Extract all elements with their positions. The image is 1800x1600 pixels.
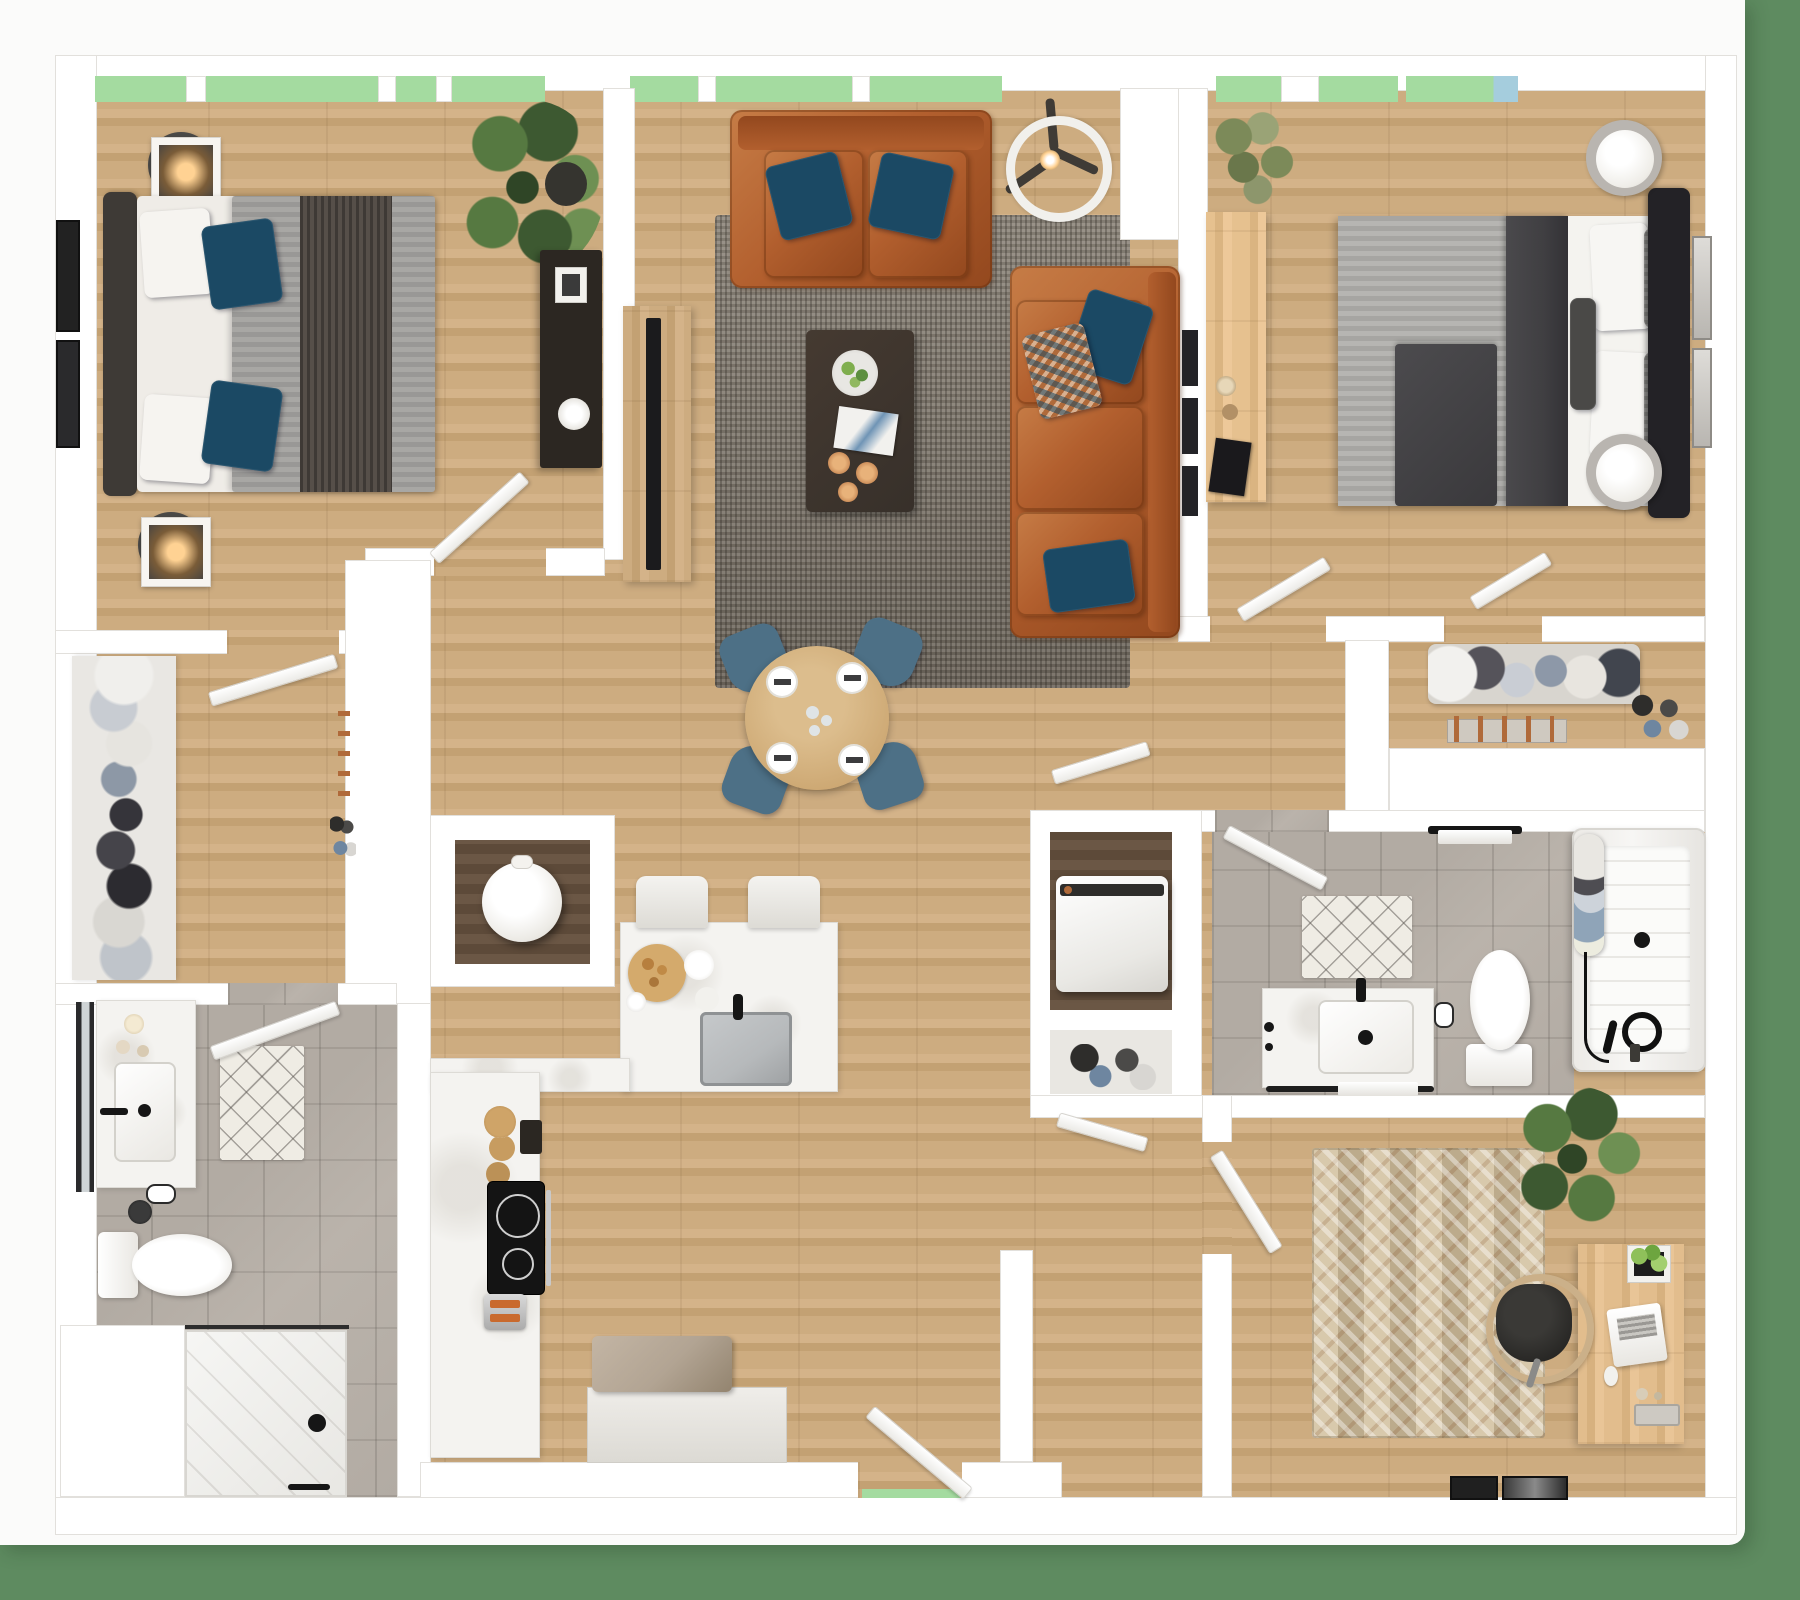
closet-shoes xyxy=(330,806,356,866)
wall-shelf-frame xyxy=(1182,398,1198,454)
closet-shelf-strip xyxy=(72,656,176,980)
vanity-candle xyxy=(124,1014,144,1034)
vase-neck xyxy=(512,856,532,868)
pastries xyxy=(642,958,654,970)
office-large-plant xyxy=(1506,1086,1644,1226)
bath-mat xyxy=(220,1046,304,1160)
closet-shoes xyxy=(1626,688,1692,746)
towel xyxy=(1438,830,1512,844)
tub-faucet-set xyxy=(1622,1012,1662,1052)
shower-pan xyxy=(185,1330,347,1497)
decor-candle xyxy=(856,462,878,484)
ceiling-fan-ring xyxy=(1006,116,1112,222)
ceiling-fan-light xyxy=(1040,150,1060,170)
bed2-charcoal-throw xyxy=(1395,344,1497,506)
loveseat-back xyxy=(738,116,984,150)
sink-drain xyxy=(1358,1030,1373,1045)
hanging-clothes xyxy=(1428,644,1640,704)
glassware xyxy=(806,706,819,719)
toilet-tank xyxy=(1466,1044,1532,1086)
bed2-charcoal-runner xyxy=(1506,216,1568,506)
black-faucet xyxy=(1356,978,1366,1002)
shower-glass xyxy=(185,1325,349,1329)
decor-vase xyxy=(482,862,562,942)
oven-handle xyxy=(546,1190,551,1286)
vanity-soaps xyxy=(116,1040,130,1054)
tub-bottle xyxy=(1630,1044,1640,1062)
entry-bench-cushion xyxy=(592,1336,732,1392)
wall-art-frame xyxy=(58,222,78,330)
entry-threshold-green xyxy=(862,1489,960,1498)
desk-candles xyxy=(1216,376,1236,396)
bathroom1-linen-closet xyxy=(60,1325,185,1497)
bedside-lamp xyxy=(142,518,210,586)
cooktop-burner xyxy=(496,1194,540,1238)
bar-stool xyxy=(636,876,708,928)
hanger-rail-hooks xyxy=(338,700,350,796)
console-decor-plate xyxy=(558,398,590,430)
desk-tray xyxy=(1634,1404,1680,1426)
wall-shelf-frame xyxy=(1182,466,1198,516)
tub-drain xyxy=(1634,932,1650,948)
food-plate xyxy=(684,950,714,980)
wood-jars xyxy=(484,1106,516,1138)
napkin xyxy=(844,675,861,681)
window-mullion xyxy=(186,76,206,102)
desk-items xyxy=(1636,1388,1648,1400)
olive-plant xyxy=(1205,106,1301,208)
closet1-doorway xyxy=(227,630,339,654)
toilet-paper-holder xyxy=(1436,1004,1452,1026)
window-mullion xyxy=(852,76,870,102)
washer-controls xyxy=(1060,884,1164,896)
washer-knob xyxy=(1064,886,1072,894)
wall-shelf-frame xyxy=(1182,330,1198,386)
tv xyxy=(646,318,661,570)
sink-drain xyxy=(138,1104,151,1117)
bed1-headboard xyxy=(103,192,137,496)
decor-candle xyxy=(828,452,850,474)
outer-wall-bottom xyxy=(55,1497,1737,1535)
navy-pillow xyxy=(201,379,284,472)
black-faucet xyxy=(100,1108,128,1115)
navy-pillow xyxy=(201,217,284,310)
toilet-bowl xyxy=(1470,950,1530,1050)
decor-plate-succulents xyxy=(832,350,878,396)
desk-notebook xyxy=(1208,438,1251,496)
coffee-cup xyxy=(626,992,646,1012)
bathroom1-doorway xyxy=(228,983,338,1005)
window-mullion xyxy=(698,76,716,102)
charcoal-lumbar-pillow xyxy=(1570,298,1596,410)
bedroom2-doorway xyxy=(1210,616,1326,642)
bedroom-2-window-right xyxy=(1406,76,1518,102)
wall-art-frame xyxy=(1452,1478,1496,1498)
window-mullion xyxy=(1281,76,1319,102)
wall-art-frame xyxy=(1694,238,1710,338)
window-mullion xyxy=(436,76,452,102)
shower-curtain xyxy=(1574,834,1604,956)
wall-art-frame xyxy=(1694,350,1710,446)
wall-kitchen-bath xyxy=(397,1003,431,1497)
console-decor-frame xyxy=(556,268,586,302)
mouse xyxy=(1604,1366,1618,1386)
faucet-handles xyxy=(1264,1022,1274,1032)
wall-art-frame xyxy=(58,342,78,446)
shower-drain xyxy=(308,1414,326,1432)
wall-hall-office xyxy=(1000,1250,1033,1462)
closet2-doorway xyxy=(1444,616,1542,642)
floor-plan-image xyxy=(0,0,1800,1600)
toaster-niche xyxy=(520,1120,542,1154)
toilet-bowl xyxy=(132,1234,232,1296)
towel xyxy=(1338,1082,1418,1096)
wall-left-mid xyxy=(345,560,431,1005)
sofa-back xyxy=(1148,272,1176,632)
living-room-window xyxy=(630,76,1002,102)
kitchen-sink xyxy=(700,1012,792,1086)
drum-lamp xyxy=(1596,130,1654,188)
decor-book xyxy=(833,406,898,456)
entry-bench-cabinet xyxy=(588,1388,786,1462)
drum-lamp xyxy=(1596,444,1654,502)
wall-corridor-closet2 xyxy=(1345,640,1389,812)
bath-mat xyxy=(1302,896,1412,978)
desk-succulent xyxy=(1626,1240,1670,1276)
floor-drain xyxy=(128,1200,152,1224)
dining-table xyxy=(745,646,889,790)
napkin xyxy=(774,679,791,685)
office-chair-seat xyxy=(1496,1284,1572,1362)
black-faucet xyxy=(733,994,743,1020)
cooktop-burner xyxy=(502,1248,534,1280)
napkin xyxy=(774,755,791,761)
bar-stool xyxy=(748,876,820,928)
decor-candle xyxy=(838,482,858,502)
toaster-slots xyxy=(490,1300,520,1308)
shoe-rack-pegs xyxy=(1454,716,1554,742)
bathroom1-mirror xyxy=(76,1002,94,1192)
window-mullion xyxy=(378,76,396,102)
sofa-cushion xyxy=(1016,406,1144,510)
navy-pillow xyxy=(867,151,955,241)
wall-art-frame xyxy=(1504,1478,1566,1498)
napkin xyxy=(846,757,863,763)
bed1-throw-blanket xyxy=(300,196,392,492)
toilet-paper-holder xyxy=(148,1186,174,1202)
shower-handle xyxy=(288,1484,330,1490)
cubby-shoes xyxy=(1058,1044,1164,1090)
plant-pot xyxy=(545,162,587,206)
navy-pillow xyxy=(1042,538,1136,613)
bedroom-1-window xyxy=(95,76,545,102)
